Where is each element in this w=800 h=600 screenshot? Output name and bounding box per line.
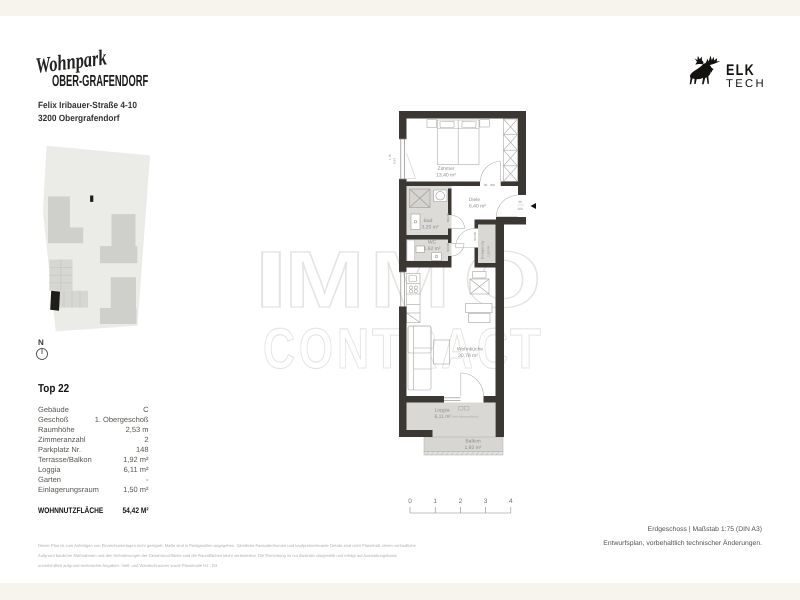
svg-text:I: I (254, 235, 288, 324)
svg-text:80/200: 80/200 (446, 212, 450, 222)
svg-text:1: 1 (433, 498, 437, 505)
svg-text:6,40 m²: 6,40 m² (469, 204, 486, 210)
svg-text:200: 200 (490, 183, 495, 187)
svg-text:Wohnküche: Wohnküche (457, 347, 484, 353)
svg-text:Einlagerung: Einlagerung (481, 241, 485, 259)
svg-text:Zimmer: Zimmer (438, 166, 455, 172)
svg-text:6,11 m²: 6,11 m² (435, 414, 452, 420)
svg-text:Bad: Bad (424, 218, 433, 224)
svg-text:ELK: ELK (726, 62, 755, 79)
svg-text:80: 80 (484, 183, 488, 187)
svg-text:O: O (299, 317, 333, 381)
svg-text:4: 4 (509, 498, 513, 505)
svg-text:90: 90 (519, 200, 523, 204)
svg-text:Diele: Diele (469, 197, 481, 203)
svg-text:2: 2 (459, 498, 463, 505)
svg-text:0,94: 0,94 (393, 158, 397, 164)
svg-text:3: 3 (484, 498, 488, 505)
svg-text:1,92 m²: 1,92 m² (465, 445, 482, 451)
svg-text:Balkon: Balkon (465, 439, 481, 445)
svg-text:1,50 m²: 1,50 m² (487, 245, 491, 257)
svg-text:TECH: TECH (726, 78, 766, 87)
svg-text:30,78 m²: 30,78 m² (458, 353, 478, 359)
svg-text:N: N (38, 338, 44, 347)
svg-text:60/200: 60/200 (446, 242, 450, 252)
svg-text:C: C (263, 317, 295, 381)
svg-text:60/200: 60/200 (473, 231, 477, 241)
svg-text:200: 200 (518, 207, 524, 211)
svg-text:N: N (337, 317, 369, 381)
svg-text:(nicht Wohnnutzfläche): (nicht Wohnnutzfläche) (452, 416, 479, 419)
svg-text:1,62 m²: 1,62 m² (424, 246, 441, 252)
svg-text:WC: WC (428, 240, 437, 246)
svg-text:3,20 m²: 3,20 m² (422, 225, 439, 231)
svg-text:13,40 m²: 13,40 m² (436, 173, 456, 179)
svg-text:0: 0 (408, 498, 412, 505)
svg-text:1,75: 1,75 (388, 154, 392, 160)
svg-text:Loggia: Loggia (435, 408, 450, 414)
svg-text:M: M (285, 235, 365, 324)
